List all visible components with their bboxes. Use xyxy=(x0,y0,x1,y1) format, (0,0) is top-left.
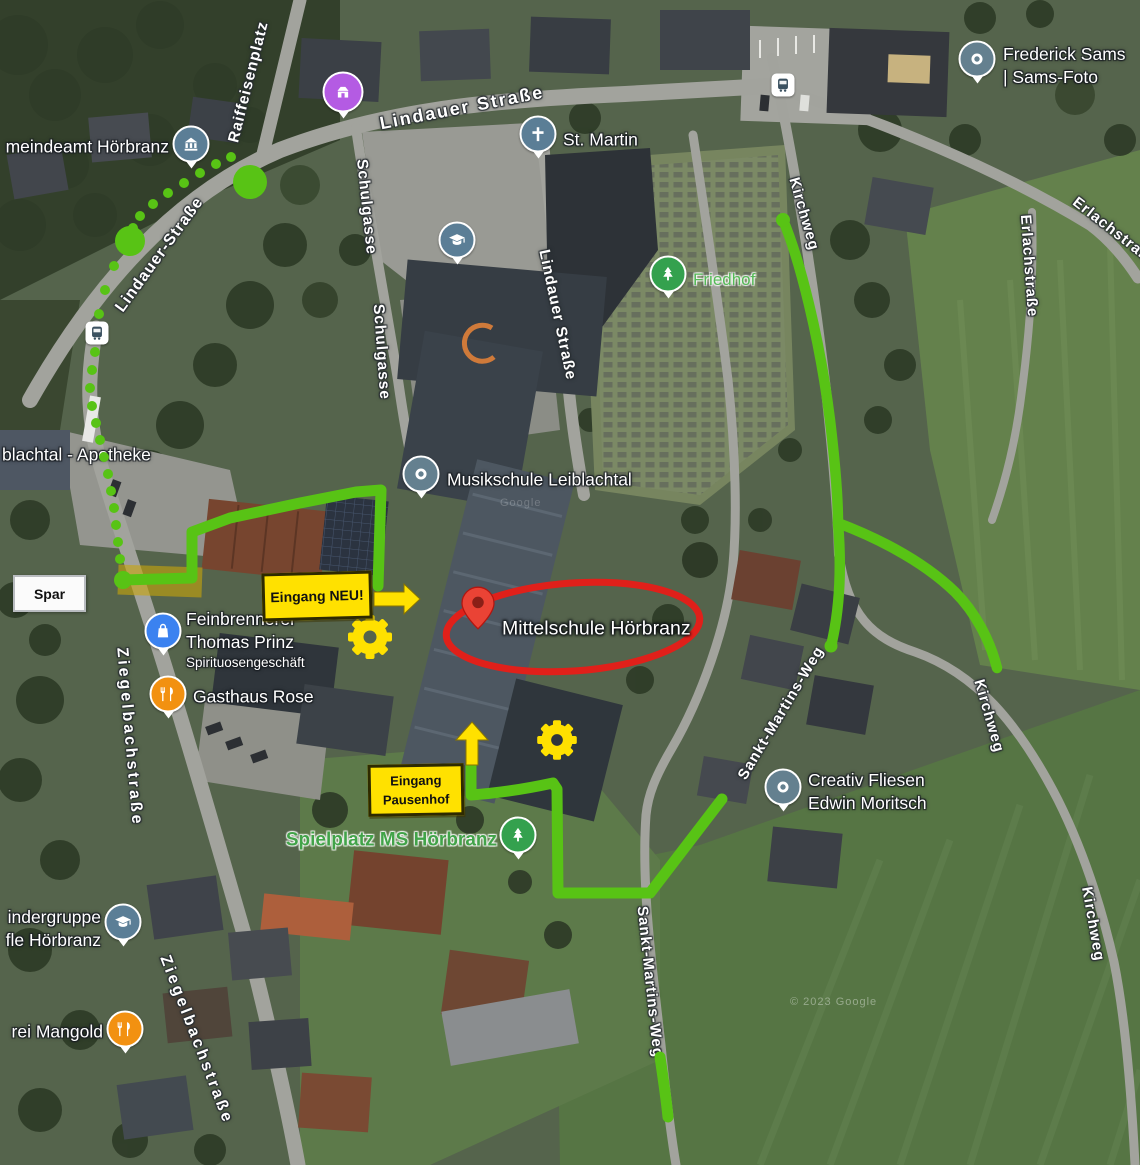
spar-text: Spar xyxy=(34,586,65,602)
map-canvas[interactable]: RaiffeisenplatzLindauer StraßeLindauer-S… xyxy=(0,0,1140,1165)
eingang-neu-text: Eingang NEU! xyxy=(270,587,364,605)
route-kirchweg xyxy=(783,220,840,646)
gear-icon xyxy=(348,615,392,659)
eingang-pausenhof-label[interactable]: Eingang Pausenhof xyxy=(368,763,465,817)
route-eingang-pausenhof xyxy=(471,764,722,893)
target-label: Mittelschule Hörbranz xyxy=(502,618,691,641)
spar-label[interactable]: Spar xyxy=(13,575,86,612)
route-blobs xyxy=(114,165,838,653)
route-kirchweg-branch xyxy=(838,523,997,668)
map-pin-icon[interactable] xyxy=(462,587,494,629)
gear-icon xyxy=(537,720,577,760)
annotations-layer xyxy=(0,0,1140,1165)
eingang-neu-label[interactable]: Eingang NEU! xyxy=(261,571,372,622)
eingang-pausenhof-line1: Eingang xyxy=(390,770,442,790)
arrow-up-icon xyxy=(456,722,488,765)
eingang-pausenhof-line2: Pausenhof xyxy=(383,789,450,810)
route-segment-south xyxy=(660,1057,668,1117)
route-dots xyxy=(85,152,236,564)
